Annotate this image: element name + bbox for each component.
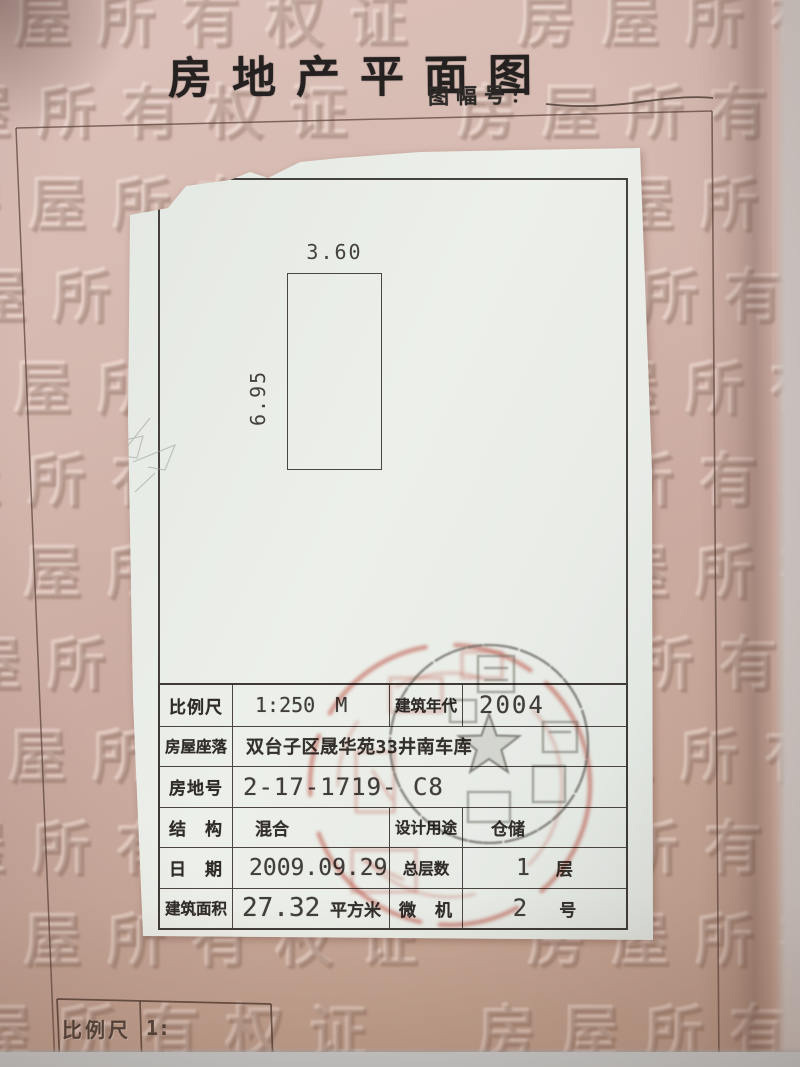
total-floors-value: 1 层: [462, 848, 626, 888]
sheet-number-label: 图幅号:: [428, 79, 527, 111]
structure-label: 结 构: [160, 808, 232, 848]
build-year-number: 2004: [479, 691, 545, 719]
scale-value: 1:250 M: [232, 685, 389, 726]
plan-width-dimension: 3.60: [284, 240, 385, 264]
design-use-label: 设计用途: [389, 808, 462, 848]
computer-no-unit: 号: [559, 896, 576, 921]
page-fold-shadow: [700, 0, 772, 1067]
structure-value: 混合: [232, 808, 389, 848]
total-floors-unit: 层: [556, 855, 573, 880]
build-year-value: 2004: [462, 685, 626, 726]
bottom-scale-label: 比例尺: [62, 1014, 131, 1043]
photo-bottom-edge: [0, 1052, 800, 1067]
location-value: 双台子区晟华苑33井南车库: [232, 727, 626, 767]
table-row: 日 期 2009.09.29 总层数 1 层: [160, 847, 626, 888]
property-no-text: 2-17-1719- C8: [243, 773, 444, 801]
total-floors-label: 总层数: [389, 848, 462, 888]
computer-no-label: 微 机: [389, 889, 462, 929]
location-text: 双台子区晟华苑33井南车库: [246, 733, 472, 759]
total-floors-number: 1: [516, 855, 530, 881]
structure-text: 混合: [255, 815, 289, 840]
table-row: 比例尺 1:250 M 建筑年代 2004: [160, 685, 626, 726]
computer-no-number: 2: [513, 894, 527, 922]
build-year-label: 建筑年代: [389, 685, 462, 726]
floor-area-value: 27.32 平方米: [232, 889, 389, 929]
date-label: 日 期: [160, 848, 232, 888]
design-use-value: 仓储: [462, 808, 626, 848]
table-row: 房屋座落 双台子区晟华苑33井南车库: [160, 726, 626, 767]
table-row: 结 构 混合 设计用途 仓储: [160, 807, 626, 848]
computer-no-value: 2 号: [462, 889, 626, 929]
drawing-sheet-paper: 3.60 6.95 比例尺 1:250 M: [115, 140, 660, 945]
bottom-scale-value: 1:: [146, 1016, 170, 1040]
property-no-value: 2-17-1719- C8: [232, 767, 626, 807]
photo-right-edge: [774, 0, 800, 1067]
property-no-label: 房地号: [160, 767, 232, 807]
location-label: 房屋座落: [160, 727, 232, 767]
date-text: 2009.09.29: [249, 855, 387, 881]
date-value: 2009.09.29: [232, 848, 389, 888]
scale-label: 比例尺: [160, 685, 232, 726]
floor-plan-outline: [287, 273, 382, 470]
table-row: 建筑面积 27.32 平方米 微 机 2 号: [160, 888, 626, 929]
plan-depth-dimension: 6.95: [246, 340, 272, 456]
table-row: 房地号 2-17-1719- C8: [160, 766, 626, 807]
certificate-photo: 房屋所有权证 房屋所有权证 房屋所有权证 房屋所有权证 房屋所有权证 房屋所有权…: [0, 0, 800, 1067]
floor-area-number: 27.32: [242, 893, 320, 923]
scale-ratio: 1:250: [255, 693, 315, 717]
design-use-text: 仓储: [491, 815, 525, 840]
floor-area-label: 建筑面积: [160, 889, 232, 929]
scale-unit: M: [335, 693, 347, 717]
page-title: 房地产平面图: [0, 38, 720, 108]
property-info-table: 比例尺 1:250 M 建筑年代 2004 房屋座落 双台子区晟华苑33井南车库: [158, 683, 628, 930]
floor-area-unit: 平方米: [330, 896, 381, 921]
drawing-sheet: 3.60 6.95 比例尺 1:250 M: [115, 140, 660, 945]
